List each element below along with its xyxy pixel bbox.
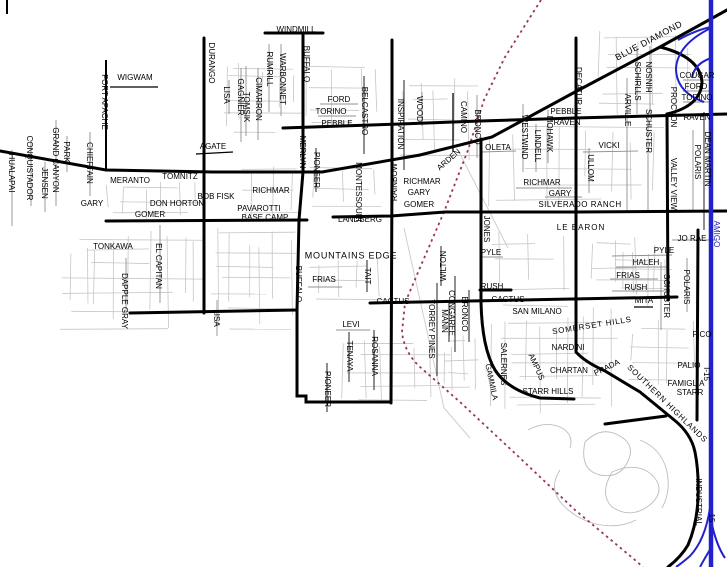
golf-course-outlines [528, 424, 668, 525]
minor-roads [110, 76, 704, 412]
faint-lines [404, 150, 508, 438]
map-graphics [0, 0, 727, 567]
map-canvas[interactable]: HUALAPAICONQUISTADORJENSENGRAND CANYONPA… [0, 0, 727, 567]
